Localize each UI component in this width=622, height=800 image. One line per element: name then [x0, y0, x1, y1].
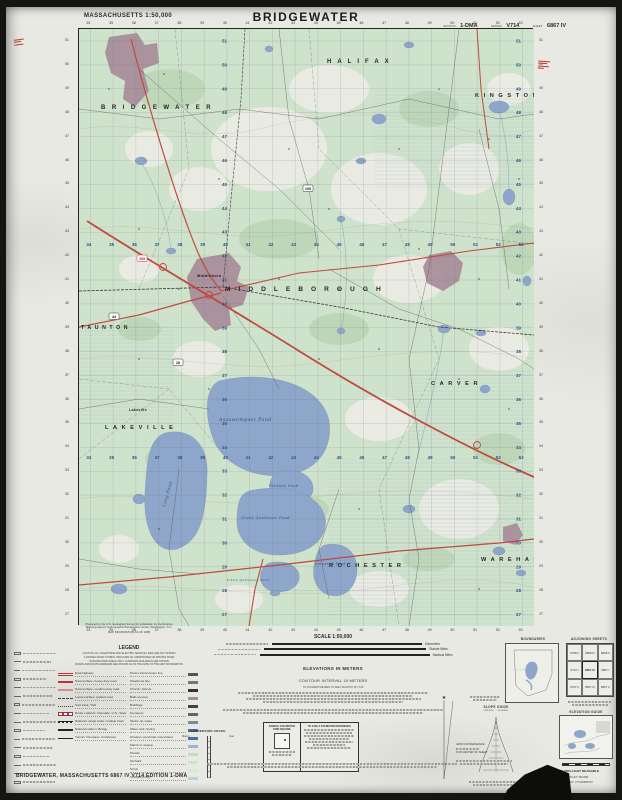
grid-coordinate: 42 — [65, 253, 69, 257]
legend-item-label: Cemetery — [130, 711, 186, 717]
legend-item: Cemetery — [130, 710, 198, 718]
gnum-label: 43 — [222, 230, 227, 235]
elevation-guide-box — [559, 715, 613, 759]
legend-symbol — [58, 729, 73, 731]
gnum-label: 48 — [516, 110, 521, 115]
gnum-label: 47 — [382, 455, 387, 460]
marginal-symbol — [14, 781, 21, 784]
scale-bar — [272, 643, 422, 645]
header-state-scale: MASSACHUSETTS 1:50,000 — [84, 13, 172, 19]
gnum-label: 38 — [516, 349, 521, 354]
grid-coordinate: 52 — [496, 21, 500, 25]
legend-item-label: Hard surface, medium duty road — [75, 687, 126, 693]
marginal-text-bar — [22, 704, 56, 706]
grid-coordinate: 48 — [65, 110, 69, 114]
elevation-data-lines — [228, 691, 438, 704]
archive-mark-left — [13, 36, 26, 47]
legend-symbol — [58, 706, 73, 707]
grid-coordinate: 49 — [428, 628, 432, 632]
grid-coordinate: 34 — [539, 444, 543, 448]
adjoining-caption — [566, 700, 614, 707]
gnum-label: 48 — [405, 455, 410, 460]
gnum-label: 35 — [109, 242, 114, 247]
grid-coordinate: 27 — [539, 612, 543, 616]
grid-coordinate: 33 — [539, 468, 543, 472]
svg-text:28: 28 — [176, 361, 180, 365]
grid-coordinate: 39 — [200, 21, 204, 25]
grid-coordinate: 43 — [291, 628, 295, 632]
adjoining-sheets-title: ADJOINING SHEETS — [562, 637, 616, 641]
adjoining-sheet-cell: 6767 II — [567, 679, 582, 696]
datum-note-lines — [208, 708, 458, 715]
legend-item-label: Built-up area — [130, 695, 186, 701]
adjoining-sheet-cell: 6767 I — [567, 661, 582, 678]
grid-coordinate: 41 — [539, 277, 543, 281]
legend-item-label: Railroad: single track; multiple track — [75, 719, 126, 725]
legend-note-line: ROADS AND ROUTE MARKERS ARE SHOWN AS OF … — [58, 663, 200, 667]
legend-item-label: Marsh or swamp — [130, 743, 186, 749]
grid-coordinate: 46 — [65, 158, 69, 162]
marginal-note-row — [14, 701, 56, 710]
town-label: TAUNTON — [81, 325, 131, 331]
scale-bar-numbers — [218, 649, 260, 651]
gnum-label: 37 — [155, 455, 160, 460]
town-label: CARVER — [431, 381, 482, 387]
gnum-label: 43 — [516, 230, 521, 235]
gnum-label: 45 — [337, 455, 342, 460]
marginal-text-bar — [23, 747, 53, 749]
legend-item: Built-up area — [130, 694, 198, 702]
grid-coordinate: 45 — [539, 181, 543, 185]
marginal-symbol — [14, 670, 20, 671]
scale-bar — [264, 648, 426, 650]
gnum-label: 27 — [222, 612, 227, 617]
water-label: Little Quittacas Pond — [226, 578, 270, 582]
marginal-text-bar — [23, 781, 55, 783]
map-sheet-paper: MASSACHUSETTS 1:50,000 BRIDGEWATER EDITI… — [6, 7, 616, 793]
gnum-label: 33 — [222, 469, 227, 474]
gnum-label: 40 — [516, 301, 521, 306]
legend-item: Railroad: single track; multiple track — [58, 718, 126, 726]
legend-symbol — [58, 721, 73, 723]
adjoining-sheet-cell: 6868 II — [598, 644, 613, 661]
grid-coordinate: 29 — [539, 564, 543, 568]
elevations-note: ELEVATIONS IN METERS — [188, 666, 478, 671]
grid-coordinate: 38 — [65, 349, 69, 353]
gnum-label: 52 — [496, 242, 501, 247]
legend-symbol — [58, 673, 73, 676]
gnum-label: 49 — [222, 86, 227, 91]
gnum-label: 41 — [246, 242, 251, 247]
grid-coordinate: 44 — [314, 628, 318, 632]
grid-coordinate: 31 — [65, 516, 69, 520]
grid-coordinate: 50 — [450, 21, 454, 25]
legend-item-label: Cart track; Trail — [75, 703, 126, 709]
gnum-label: 50 — [516, 62, 521, 67]
grid-coordinate: 46 — [359, 628, 363, 632]
grid-coordinate: 40 — [223, 628, 227, 632]
gnum-label: 37 — [516, 373, 521, 378]
adjoining-sheet-cell: 6867 II — [598, 679, 613, 696]
boundaries-title: BOUNDARIES — [498, 637, 568, 641]
grid-coordinate: 34 — [86, 21, 90, 25]
grid-coordinate: 28 — [539, 588, 543, 592]
marginal-note-row — [14, 761, 56, 770]
marginal-text-bar — [23, 730, 45, 732]
scale-bars: KilometersStatute MilesNautical Miles — [188, 641, 478, 658]
grid-coordinate: 49 — [539, 86, 543, 90]
grid-coordinate: 36 — [65, 397, 69, 401]
footer-right-notes — [454, 759, 514, 766]
gnum-label: 43 — [291, 455, 296, 460]
grid-coordinate: 53 — [519, 21, 523, 25]
elevation-guide-scalebar — [562, 763, 610, 766]
marginal-note-row — [14, 752, 56, 761]
legend-item-label: Tanks: oil, water — [130, 719, 186, 725]
legend-item: Cart track; Trail — [58, 702, 126, 710]
legend-item: Railroad station; Bridge — [58, 726, 126, 734]
grid-coordinate: 51 — [65, 38, 69, 42]
legend-symbol — [188, 705, 198, 708]
marginal-symbol — [14, 652, 21, 655]
gnum-label: 42 — [268, 455, 273, 460]
grid-coordinate: 37 — [155, 21, 159, 25]
gnum-label: 44 — [222, 206, 227, 211]
gnum-label: 46 — [359, 242, 364, 247]
grid-coordinate: 35 — [109, 21, 113, 25]
legend-item-label: Scrub — [130, 767, 186, 773]
grid-coordinate: 45 — [337, 628, 341, 632]
marginal-symbol — [14, 687, 21, 688]
conversion-graph-title: CONVERSION GRAPH — [182, 729, 234, 733]
route-shield: 105 — [303, 185, 313, 192]
legend-item: Buildings — [130, 702, 198, 710]
gnum-label: 38 — [222, 349, 227, 354]
gnum-label: 28 — [222, 588, 227, 593]
gnum-label: 51 — [222, 39, 227, 44]
gnum-label: 50 — [450, 242, 455, 247]
gnum-label: 46 — [359, 455, 364, 460]
gnum-label: 29 — [222, 564, 227, 569]
gnum-label: 50 — [450, 455, 455, 460]
legend-item: Tunnel; Overpass; Underpass — [58, 734, 126, 742]
gnum-label: 31 — [222, 517, 227, 522]
marginal-text-bar — [22, 738, 56, 740]
grid-coordinate: 48 — [539, 110, 543, 114]
legend-item: Loose surface, graded road — [58, 694, 126, 702]
map-body: BRIDGEWATERHALIFAXKINGSTONMIDDLEBOROUGHL… — [78, 28, 533, 625]
scale-bar-row: Kilometers — [188, 642, 478, 646]
town-label: BRIDGEWATER — [101, 105, 217, 111]
marginal-note-row — [14, 735, 56, 744]
scale-bar-row: Statute Miles — [188, 647, 478, 651]
grid-coordinate: 48 — [405, 628, 409, 632]
marginal-symbol — [14, 729, 21, 732]
marginal-symbol — [14, 703, 20, 706]
marginal-text-bar — [23, 756, 49, 758]
grid-coordinate: 47 — [65, 134, 69, 138]
gnum-label: 44 — [516, 206, 521, 211]
grid-coordinate: 42 — [268, 628, 272, 632]
gnum-label: 48 — [222, 110, 227, 115]
grid-coordinate: 47 — [539, 134, 543, 138]
grid-coordinate: 42 — [539, 253, 543, 257]
route-shield: 495 — [137, 255, 147, 262]
marginal-text-bar — [23, 695, 53, 697]
gnum-label: 36 — [516, 397, 521, 402]
conversion-left-unit: Meters — [182, 735, 190, 738]
grid-coordinate: 46 — [359, 21, 363, 25]
marginal-text-bar — [23, 661, 51, 663]
legend-symbol — [188, 721, 198, 724]
adjoining-sheet-cell: 6867 III — [582, 679, 597, 696]
grid-coordinate: 50 — [450, 628, 454, 632]
grid-ref-sample-title: SAMPLE 1000 METER GRID SQUARE — [266, 725, 298, 731]
grid-coordinate: 39 — [65, 325, 69, 329]
gnum-label: 44 — [314, 242, 319, 247]
legend-symbol — [188, 713, 198, 716]
legend-symbol — [58, 712, 73, 716]
grid-coordinate: 38 — [539, 349, 543, 353]
gnum-label: 32 — [222, 493, 227, 498]
marginal-symbol — [14, 713, 21, 714]
gnum-label: 36 — [132, 455, 137, 460]
gnum-label: 39 — [222, 325, 227, 330]
grid-coordinate: 42 — [268, 21, 272, 25]
town-label: KINGSTON — [475, 93, 534, 99]
gnum-label: 45 — [516, 182, 521, 187]
legend-left-column: Dual highwayHard surface, heavy duty roa… — [58, 670, 126, 782]
gnum-label: 49 — [516, 86, 521, 91]
grid-coordinate: 51 — [473, 628, 477, 632]
gnum-label: 47 — [382, 242, 387, 247]
gnum-label: 39 — [200, 455, 205, 460]
scale-bar-unit: Kilometers — [425, 642, 440, 646]
legend-item: Hard surface, medium duty road — [58, 686, 126, 694]
grid-coordinate: 37 — [65, 373, 69, 377]
grid-coordinate: 43 — [65, 229, 69, 233]
svg-text:495: 495 — [139, 257, 145, 261]
marginal-note-row — [14, 718, 56, 727]
grid-coordinate: 31 — [539, 516, 543, 520]
gnum-label: 36 — [222, 397, 227, 402]
marginal-note-row — [14, 778, 56, 787]
grid-coordinate: 40 — [65, 301, 69, 305]
adjoining-grid: 6768 II6868 III6868 II6767 I6867 IV6867 … — [566, 643, 614, 697]
sheet-value: 6867 IV — [547, 23, 566, 29]
grid-coordinate: 40 — [223, 21, 227, 25]
gnum-label: 37 — [222, 373, 227, 378]
village-label: Middleboro — [197, 273, 222, 278]
gnum-label: 40 — [223, 242, 228, 247]
grid-coordinate: 45 — [337, 21, 341, 25]
marginal-symbol — [14, 696, 21, 697]
gnum-label: 36 — [132, 242, 137, 247]
gnum-label: 53 — [519, 242, 524, 247]
gnum-label: 34 — [86, 242, 91, 247]
marginal-text-bar — [23, 653, 56, 655]
gnum-label: 45 — [337, 242, 342, 247]
marginal-notes-column — [14, 649, 56, 787]
gnum-label: 32 — [516, 493, 521, 498]
marginal-note-row — [14, 658, 56, 667]
grid-coordinate: 44 — [65, 205, 69, 209]
gnum-label: 45 — [222, 182, 227, 187]
gnum-label: 33 — [516, 469, 521, 474]
gnum-label: 35 — [109, 455, 114, 460]
marginal-symbol — [14, 722, 21, 723]
gnum-label: 34 — [86, 455, 91, 460]
gnum-label: 42 — [516, 254, 521, 259]
grid-coordinate: 35 — [539, 420, 543, 424]
gnum-label: 41 — [246, 455, 251, 460]
grid-coordinate: 27 — [65, 612, 69, 616]
topographic-map: BRIDGEWATERHALIFAXKINGSTONMIDDLEBOROUGHL… — [79, 29, 534, 626]
gnum-label: 29 — [516, 564, 521, 569]
archive-mark-right — [538, 59, 553, 71]
town-label: WAREHAM — [481, 557, 534, 563]
legend: LEGEND CAUTION: ALL TELEPHONE AND ELECTR… — [58, 645, 200, 782]
route-shield: 44 — [109, 313, 119, 320]
gnum-label: 40 — [222, 301, 227, 306]
grid-coordinate: 36 — [539, 397, 543, 401]
grid-coordinate: 46 — [539, 158, 543, 162]
scale-title: SCALE 1:50,000 — [188, 634, 478, 640]
grid-coordinate: 32 — [539, 492, 543, 496]
grid-ref-sample-square — [274, 733, 290, 749]
gnum-label: 47 — [222, 134, 227, 139]
grid-coordinate: 41 — [246, 21, 250, 25]
snipatuit-pond — [314, 544, 357, 596]
legend-symbol — [58, 681, 73, 683]
gnum-label: 35 — [516, 421, 521, 426]
water-label: Pocksha Pond — [268, 484, 299, 488]
town-label: LAKEVILLE — [105, 425, 177, 431]
scale-bar-numbers — [226, 643, 268, 645]
marginal-text-bar — [23, 687, 56, 689]
legend-item-label: Streams: perennial; intermittent — [130, 735, 186, 741]
legend-item: Power transmission line — [130, 670, 198, 678]
grid-coordinate: 41 — [65, 277, 69, 281]
grid-coordinate: 39 — [200, 628, 204, 632]
map-info-date: MAP INFORMATION AS OF 1985 — [58, 631, 200, 634]
grid-coordinate: 47 — [382, 628, 386, 632]
slope-guide-columns: PERCENT DEGREES — [468, 710, 524, 712]
star-symbol: ★ — [442, 695, 447, 701]
water-label: Great Quittacas Pond — [241, 516, 290, 520]
gnum-label: 53 — [519, 455, 524, 460]
svg-text:105: 105 — [305, 187, 311, 191]
legend-symbol — [188, 697, 198, 700]
grid-coordinate: 51 — [539, 38, 543, 42]
conversion-right-unit: Feet — [229, 735, 234, 738]
village-label: Lakeville — [129, 408, 147, 412]
legend-item-label: Railroad station; Bridge — [75, 727, 126, 733]
gnum-label: 50 — [222, 62, 227, 67]
gnum-label: 41 — [222, 278, 227, 283]
gnum-label: 51 — [473, 455, 478, 460]
gnum-label: 38 — [177, 242, 182, 247]
marginal-symbol — [14, 755, 21, 758]
gnum-label: 46 — [222, 158, 227, 163]
grid-margin-right: 5150494847464544434241403938373635343332… — [535, 28, 549, 625]
marginal-text-bar — [23, 678, 47, 680]
conversion-note: TO CONVERT METERS TO FEET MULTIPLY BY 3.… — [188, 686, 478, 689]
legend-item-label: Telephone line — [130, 679, 186, 685]
grid-coordinate: 39 — [539, 325, 543, 329]
legend-notes: CAUTION: ALL TELEPHONE AND ELECTRIC SERV… — [58, 652, 200, 667]
conversion-graph: CONVERSION GRAPH Meters Feet — [182, 729, 234, 779]
gnum-label: 42 — [268, 242, 273, 247]
gnum-label: 34 — [222, 445, 227, 450]
marginal-text-bar — [23, 713, 49, 715]
gnum-label: 48 — [405, 242, 410, 247]
grid-coordinate: 51 — [473, 21, 477, 25]
scale-bar-row: Nautical Miles — [188, 653, 478, 657]
grid-coordinate: 43 — [539, 229, 543, 233]
grid-coordinate: 30 — [65, 540, 69, 544]
gnum-label: 38 — [177, 455, 182, 460]
marginal-note-row — [14, 683, 56, 692]
legend-symbol — [58, 689, 73, 691]
adjoining-sheet-cell: 6867 IV — [582, 661, 597, 678]
boundaries-box — [505, 643, 559, 703]
legend-item-label: Tunnel; Overpass; Underpass — [75, 735, 126, 741]
grid-coordinate: 49 — [428, 21, 432, 25]
legend-symbol — [188, 673, 198, 676]
adjoining-sheet-cell: 6867 I — [598, 661, 613, 678]
gnum-label: 30 — [222, 540, 227, 545]
gnum-label: 30 — [516, 540, 521, 545]
gnum-label: 52 — [496, 455, 501, 460]
grid-coordinate: 40 — [539, 301, 543, 305]
adjoining-sheet-cell: 6868 III — [582, 644, 597, 661]
marginal-note-row — [14, 744, 56, 753]
gnum-label: 31 — [516, 517, 521, 522]
legend-item-label: Buildings — [130, 703, 186, 709]
legend-symbol — [58, 698, 73, 699]
grid-coordinate: 41 — [246, 628, 250, 632]
gnum-label: 28 — [516, 588, 521, 593]
route-shield: 28 — [173, 359, 183, 366]
gnum-label: 46 — [516, 158, 521, 163]
conversion-ruler — [207, 736, 211, 778]
gnum-label: 49 — [428, 455, 433, 460]
gnum-label: 47 — [516, 134, 521, 139]
marginal-symbol — [14, 765, 21, 766]
water-label: Snipatuit Pond — [315, 562, 346, 566]
adjoining-sheet-cell: 6768 II — [567, 644, 582, 661]
legend-item: Route markers: Interstate; U.S.; State — [58, 710, 126, 718]
legend-item-label: Church; School — [130, 687, 186, 693]
gnum-label: 51 — [516, 39, 521, 44]
marginal-text-bar — [22, 670, 56, 672]
legend-title: LEGEND — [58, 645, 200, 651]
gnum-label: 41 — [516, 278, 521, 283]
gnum-label: 40 — [223, 455, 228, 460]
grid-coordinate: 47 — [382, 21, 386, 25]
grid-coordinate: 33 — [65, 468, 69, 472]
marginal-symbol — [14, 747, 21, 748]
grid-coordinate: 32 — [65, 492, 69, 496]
grid-coordinate: 53 — [519, 628, 523, 632]
gnum-label: 37 — [155, 242, 160, 247]
gnum-label: 49 — [428, 242, 433, 247]
credit-note: Prepared by the U.S. Geological Survey f… — [58, 623, 200, 635]
legend-item-label: Power transmission line — [130, 671, 186, 677]
elevation-guide-title: ELEVATION GUIDE — [558, 710, 614, 714]
gnum-label: 42 — [222, 254, 227, 259]
